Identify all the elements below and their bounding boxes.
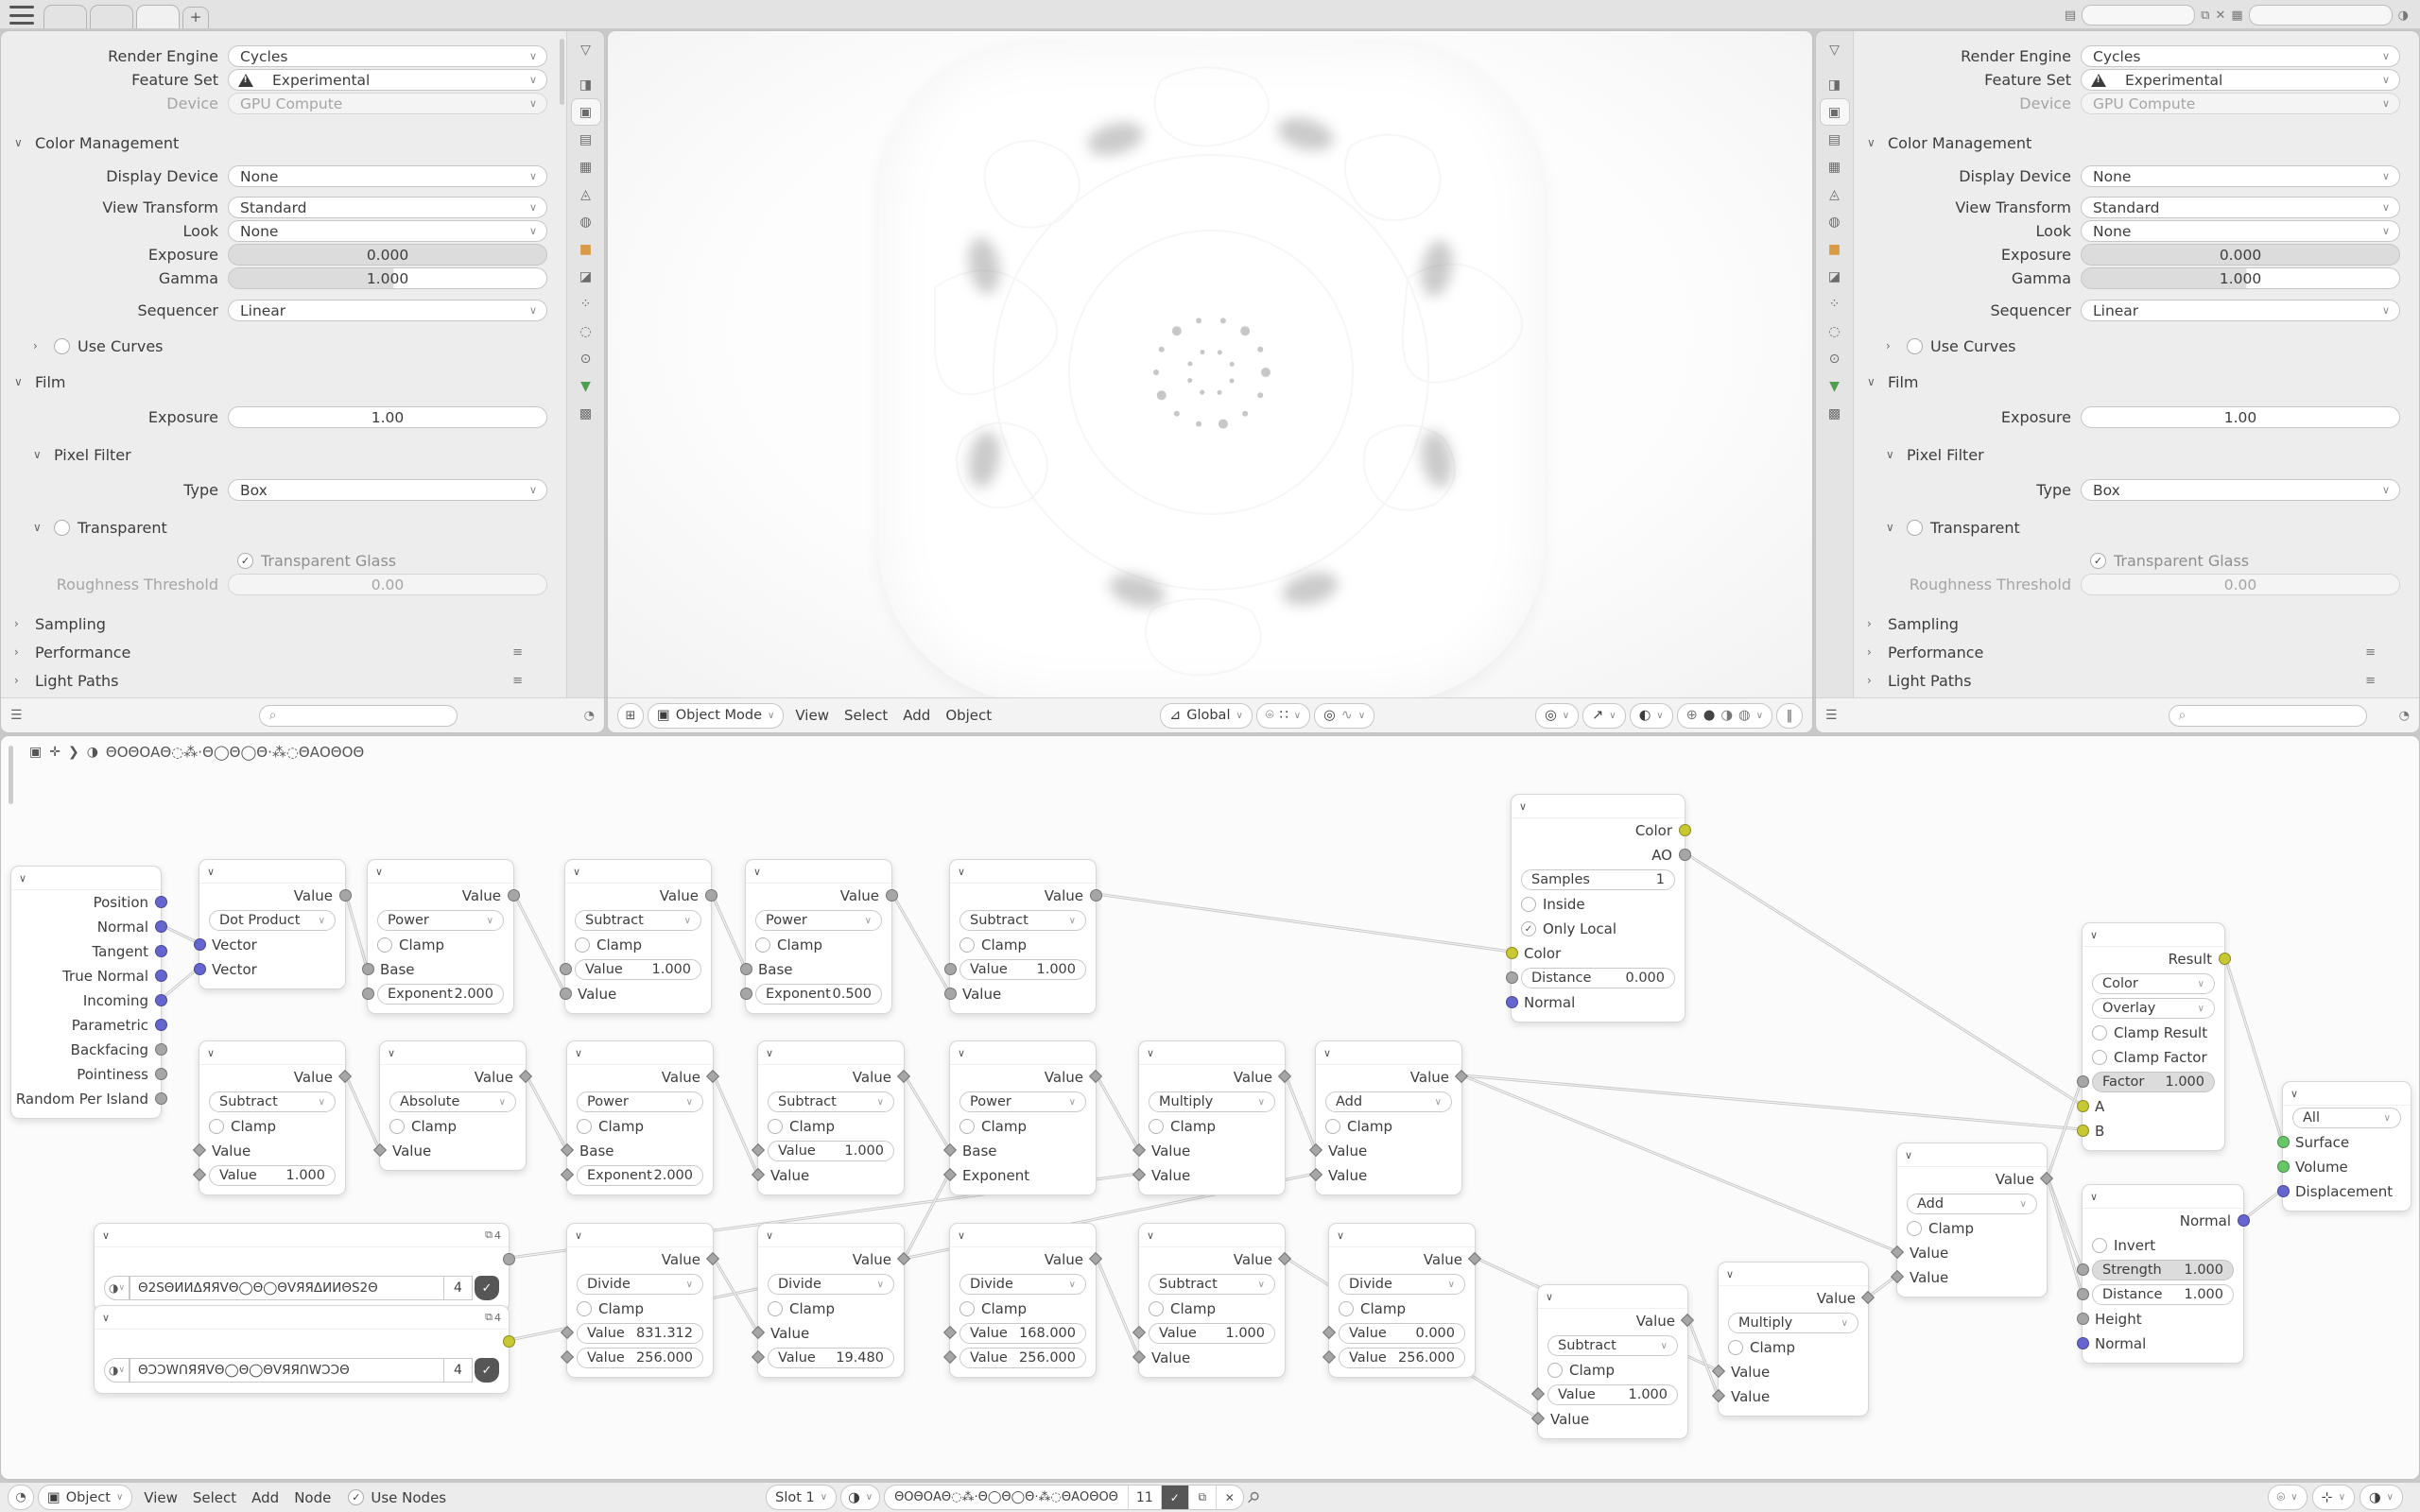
material-name-field[interactable]: ΘΟΘΟAΘ◌⁂·Θ◯Θ◯Θ·⁂◌ΘAΟΘΟΘ [885, 1490, 1128, 1504]
overlay-icon[interactable]: ⊹∨ [2312, 1485, 2355, 1510]
prop-dropdown[interactable]: Experimental∨ [2081, 69, 2400, 91]
show-overlays-dropdown[interactable]: ↗∨ [1582, 703, 1625, 729]
math-power-node[interactable]: ∨ValuePower∨ClampBaseExponent2.000 [367, 859, 514, 1014]
add-workspace-tab[interactable]: + [182, 7, 209, 28]
checkbox[interactable] [1325, 1119, 1340, 1134]
input-socket[interactable] [2277, 1160, 2290, 1173]
menu-add[interactable]: Add [895, 707, 938, 724]
input-socket[interactable] [2277, 1185, 2290, 1197]
prop-dropdown[interactable]: Box∨ [2081, 479, 2400, 501]
world-tab-icon[interactable]: ◍ [572, 209, 600, 234]
output-socket[interactable] [503, 1335, 515, 1348]
node-header[interactable]: ∨ [950, 1041, 1096, 1065]
modifiers-tab-icon[interactable]: ◪ [572, 264, 600, 289]
collapse-chevron-icon[interactable]: ∨ [388, 1047, 395, 1059]
math-add-node[interactable]: ∨ValueAdd∨ClampValueValue [1315, 1040, 1462, 1195]
collapse-chevron-icon[interactable]: ∨ [1323, 1047, 1331, 1059]
checkbox[interactable] [389, 1119, 405, 1134]
math-divide-node[interactable]: ∨ValueDivide∨ClampValue168.000Value256.0… [949, 1223, 1097, 1378]
prop-dropdown[interactable]: Cycles∨ [228, 45, 547, 67]
node-header[interactable]: ∨ [2283, 1082, 2411, 1106]
checkbox[interactable]: ✓ [2090, 553, 2106, 569]
operation-dropdown[interactable]: Add∨ [1907, 1194, 2037, 1214]
math-subtract-node[interactable]: ∨ValueSubtract∨ClampValue1.000Value [564, 859, 712, 1014]
image-users-count[interactable]: 4 [444, 1358, 473, 1383]
constraints-tab-icon[interactable]: ⊙ [572, 346, 600, 371]
input-socket[interactable] [2277, 1136, 2290, 1148]
math-divide-node[interactable]: ∨ValueDivide∨ClampValueValue19.480 [757, 1223, 905, 1378]
value-field[interactable]: Exponent2.000 [577, 1165, 703, 1186]
node-header[interactable]: ∨ [199, 1041, 345, 1065]
copy-material-icon[interactable]: ⧉ [1188, 1486, 1216, 1509]
output-socket[interactable] [1679, 849, 1691, 861]
node-header[interactable]: ∨ [2083, 923, 2224, 947]
particles-tab-icon[interactable]: ⁘ [572, 291, 600, 317]
collapse-chevron-icon[interactable]: ∨ [575, 1047, 582, 1059]
material-tab-icon[interactable]: ▩ [572, 401, 600, 426]
output-socket[interactable] [155, 896, 167, 908]
collapse-chevron-icon[interactable]: ∨ [375, 866, 383, 878]
math-power-node[interactable]: ∨ValuePower∨ClampBaseExponent0.500 [745, 859, 892, 1014]
image-browse-dropdown[interactable]: ◑∨ [104, 1358, 130, 1383]
math-power-node[interactable]: ∨ValuePower∨ClampBaseExponent [949, 1040, 1097, 1195]
output-socket[interactable] [339, 889, 352, 902]
input-socket[interactable] [560, 988, 572, 1000]
input-socket[interactable] [2077, 1125, 2089, 1137]
viewport-canvas[interactable] [608, 31, 1812, 698]
menu-select[interactable]: Select [185, 1489, 244, 1506]
value-field[interactable]: Value19.480 [768, 1348, 894, 1368]
prop-dropdown[interactable]: None∨ [2081, 165, 2400, 187]
checkbox[interactable] [575, 937, 590, 953]
prop-dropdown[interactable]: GPU Compute∨ [2081, 93, 2400, 114]
editor-type-icon[interactable]: ☰ [1825, 708, 1838, 723]
value-field[interactable]: Exponent2.000 [377, 984, 504, 1005]
checkbox[interactable] [1149, 1301, 1164, 1316]
shading-mode-icon[interactable]: ⊕ [1686, 708, 1698, 723]
prop-dropdown[interactable]: Standard∨ [228, 197, 547, 218]
view-layer-tab-icon[interactable]: ▦ [1821, 154, 1849, 180]
use-nodes-checkbox[interactable]: ✓ [348, 1489, 364, 1505]
particles-tab-icon[interactable]: ⁘ [1821, 291, 1849, 317]
operation-dropdown[interactable]: Divide∨ [959, 1274, 1086, 1295]
prop-field[interactable]: 1.00 [2081, 406, 2400, 428]
output-socket[interactable] [705, 889, 717, 902]
image-name-field[interactable]: Θ2ЅΘͶИΔЯЯVΘ◯Θ◯ΘVЯЯΔИͶΘЅ2Θ [130, 1276, 444, 1300]
close-icon[interactable]: ✕ [2215, 9, 2225, 23]
xray-toggle[interactable]: ◐∨ [1630, 703, 1673, 729]
node-header[interactable]: ∨ [950, 1224, 1096, 1247]
math-dot-product-node[interactable]: ∨ValueDot Product∨VectorVector [199, 859, 346, 989]
collapse-chevron-icon[interactable]: ∨ [2090, 929, 2098, 941]
value-field[interactable]: Value1.000 [575, 959, 701, 980]
search-input[interactable]: ⌕ [259, 705, 458, 727]
collapse-chevron-icon[interactable]: ∨ [2090, 1191, 2098, 1203]
collapse-chevron-icon[interactable]: ∨ [1546, 1291, 1553, 1303]
presets-menu-icon[interactable]: ≡ [2365, 674, 2377, 688]
world-tab-icon[interactable]: ◍ [1821, 209, 1849, 234]
input-socket[interactable] [740, 963, 752, 975]
input-socket[interactable] [2077, 1075, 2089, 1088]
math-subtract-node[interactable]: ∨ValueSubtract∨ClampValue1.000Value [757, 1040, 905, 1195]
operation-dropdown[interactable]: All∨ [2292, 1108, 2401, 1128]
checkbox[interactable] [2092, 1050, 2107, 1065]
fake-user-shield-icon[interactable]: ✓ [1161, 1486, 1188, 1509]
node-header[interactable]: ∨ [199, 860, 345, 884]
value-field[interactable]: Value1.000 [1149, 1323, 1275, 1344]
toggle-checkbox[interactable] [54, 520, 70, 536]
pause-render-button[interactable]: ‖ [1776, 703, 1803, 729]
math-multiply-node[interactable]: ∨ValueMultiply∨ClampValueValue [1138, 1040, 1286, 1195]
collapse-chevron-icon[interactable]: ∨ [1147, 1229, 1154, 1242]
image-texture-node[interactable]: ∨⧉4◑∨ΘƆϽWՈЯЯVΘ◯Θ◯ΘVЯЯՈWϽƆΘ4✓ [94, 1305, 510, 1394]
node-header[interactable]: ∨ [758, 1224, 904, 1247]
checkbox[interactable] [1339, 1301, 1354, 1316]
node-header[interactable]: ∨ [565, 860, 711, 884]
prop-slider[interactable]: 1.000 [2081, 267, 2400, 289]
section-light-paths[interactable]: ›Light Paths≡ [1854, 668, 2420, 693]
checkbox[interactable] [209, 1119, 224, 1134]
operation-dropdown[interactable]: Subtract∨ [959, 910, 1086, 931]
menu-add[interactable]: Add [244, 1489, 286, 1506]
section-color-management[interactable]: ∨Color Management [1, 130, 568, 155]
presets-menu-icon[interactable]: ≡ [512, 645, 525, 660]
node-header[interactable]: ∨⧉4 [95, 1306, 509, 1330]
unlink-material-icon[interactable]: ✕ [1216, 1486, 1243, 1509]
view-layer-field[interactable] [2249, 5, 2393, 26]
shading-mode-icon[interactable]: ● [1703, 708, 1716, 723]
physics-tab-icon[interactable]: ◌ [572, 318, 600, 344]
section-pixel-filter[interactable]: ∨Pixel Filter [1, 442, 568, 467]
output-socket[interactable] [155, 945, 167, 957]
sphere-icon[interactable]: ◑ [2398, 9, 2409, 23]
collapse-chevron-icon[interactable]: ∨ [766, 1047, 773, 1059]
math-add-node[interactable]: ∨ValueAdd∨ClampValueValue [1896, 1143, 2048, 1297]
editor-type-icon[interactable]: ⊞ [617, 703, 644, 729]
copy-icon[interactable]: ⧉ [2201, 9, 2209, 23]
value-field[interactable]: Value168.000 [959, 1323, 1086, 1344]
value-field[interactable]: Value256.000 [577, 1348, 703, 1368]
material-preview-icon[interactable]: ◑ [87, 745, 98, 760]
checkbox[interactable] [768, 1119, 783, 1134]
section-pixel-filter[interactable]: ∨Pixel Filter [1854, 442, 2420, 467]
math-multiply-node[interactable]: ∨ValueMultiply∨ClampValueValue [1718, 1262, 1869, 1417]
node-header[interactable]: ∨ [1316, 1041, 1461, 1065]
object-data-tab-icon[interactable]: ▼ [572, 373, 600, 399]
input-socket[interactable] [1506, 947, 1518, 959]
object-data-tab-icon[interactable]: ▼ [1821, 373, 1849, 399]
checkbox[interactable] [2092, 1025, 2107, 1040]
pin-icon[interactable]: ⚲ [1243, 1487, 1264, 1508]
math-subtract-node[interactable]: ∨ValueSubtract∨ClampValueValue1.000 [199, 1040, 346, 1195]
modifiers-tab-icon[interactable]: ◪ [1821, 264, 1849, 289]
value-field[interactable]: Exponent0.500 [755, 984, 882, 1005]
operation-dropdown[interactable]: Subtract∨ [1149, 1274, 1275, 1295]
output-socket[interactable] [155, 920, 167, 933]
toggle-checkbox[interactable] [1907, 520, 1923, 536]
tool-tab-icon[interactable]: ◨ [1821, 72, 1849, 97]
value-field[interactable]: Factor1.000 [2092, 1072, 2215, 1092]
section-film[interactable]: ∨Film [1854, 369, 2420, 394]
image-users-count[interactable]: 4 [444, 1276, 473, 1300]
input-socket[interactable] [2077, 1313, 2089, 1325]
menu-node[interactable]: Node [286, 1489, 338, 1506]
mode-dropdown[interactable]: ▣ Object Mode ∨ [648, 703, 784, 729]
value-field[interactable]: Value0.000 [1339, 1323, 1465, 1344]
operation-dropdown[interactable]: Divide∨ [768, 1274, 894, 1295]
snap-icon[interactable]: ⌾∨ [2268, 1485, 2308, 1510]
operation-dropdown[interactable]: Divide∨ [577, 1274, 703, 1295]
collapse-chevron-icon[interactable]: ∨ [1337, 1229, 1344, 1242]
math-subtract-node[interactable]: ∨ValueSubtract∨ClampValue1.000Value [949, 859, 1097, 1014]
object-tab-icon[interactable]: ■ [572, 236, 600, 262]
shading-mode-icon[interactable]: ◑ [1720, 708, 1733, 723]
node-header[interactable]: ∨ [567, 1041, 713, 1065]
presets-menu-icon[interactable]: ≡ [2365, 645, 2377, 660]
input-socket[interactable] [740, 988, 752, 1000]
filter-icon[interactable]: ◔ [2399, 709, 2410, 723]
users-count-badge[interactable]: 11 [1128, 1486, 1161, 1509]
prop-field[interactable]: 0.00 [228, 574, 547, 595]
input-socket[interactable] [362, 988, 374, 1000]
input-socket[interactable] [2077, 1263, 2089, 1276]
collapse-chevron-icon[interactable]: ∨ [766, 1229, 773, 1242]
workspace-tab[interactable] [90, 5, 133, 28]
node-header[interactable]: ∨ [1139, 1041, 1285, 1065]
collapse-chevron-icon[interactable]: ∨ [958, 866, 965, 878]
editor-type-icon[interactable]: ☰ [10, 708, 23, 723]
output-socket[interactable] [503, 1253, 515, 1265]
checkbox[interactable] [577, 1119, 592, 1134]
node-header[interactable]: ∨ [11, 867, 161, 890]
node-graph[interactable]: ∨PositionNormalTangentTrue NormalIncomin… [1, 736, 2419, 1479]
checkbox[interactable] [959, 1301, 975, 1316]
output-socket[interactable] [508, 889, 520, 902]
prop-field[interactable]: 1.00 [228, 406, 547, 428]
prop-dropdown[interactable]: GPU Compute∨ [228, 93, 547, 114]
section-performance[interactable]: ›Performance≡ [1854, 640, 2420, 664]
collapse-chevron-icon[interactable]: ∨ [102, 1312, 110, 1324]
node-header[interactable]: ∨ [758, 1041, 904, 1065]
scene-tab-icon[interactable]: ◬ [1821, 181, 1849, 207]
material-slot-dropdown[interactable]: Slot 1 ∨ [766, 1485, 837, 1510]
collapse-chevron-icon[interactable]: ∨ [573, 866, 580, 878]
operation-dropdown[interactable]: Power∨ [755, 910, 882, 931]
checkbox[interactable] [768, 1301, 783, 1316]
image-name-field[interactable]: ΘƆϽWՈЯЯVΘ◯Θ◯ΘVЯЯՈWϽƆΘ [130, 1358, 444, 1383]
math-divide-node[interactable]: ∨ValueDivide∨ClampValue831.312Value256.0… [566, 1223, 714, 1378]
operation-dropdown[interactable]: Power∨ [377, 910, 504, 931]
object-tab-icon[interactable]: ■ [1821, 236, 1849, 262]
value-field[interactable]: Samples1 [1521, 869, 1675, 890]
proportional-editing-toggle[interactable]: ◎∿∨ [1314, 703, 1374, 729]
output-tab-icon[interactable]: ▤ [572, 127, 600, 152]
checkbox[interactable] [959, 937, 975, 953]
operation-dropdown[interactable]: Subtract∨ [1547, 1335, 1678, 1356]
output-socket[interactable] [155, 1019, 167, 1031]
input-socket[interactable] [2077, 1337, 2089, 1349]
math-subtract-node[interactable]: ∨ValueSubtract∨ClampValue1.000Value [1138, 1223, 1286, 1378]
value-field[interactable]: Strength1.000 [2092, 1260, 2234, 1280]
mix-color-node[interactable]: ∨ResultColor∨Overlay∨Clamp ResultClamp F… [2082, 922, 2225, 1151]
section-performance[interactable]: ›Performance≡ [1, 640, 568, 664]
material-preview-icon[interactable]: ◑∨ [2359, 1485, 2403, 1510]
node-header[interactable]: ∨ [2083, 1185, 2243, 1209]
output-socket[interactable] [155, 970, 167, 982]
operation-dropdown[interactable]: Power∨ [959, 1091, 1086, 1112]
node-header[interactable]: ∨⧉4 [95, 1224, 509, 1247]
snapping-toggle[interactable]: ⌾∷∨ [1256, 703, 1310, 729]
scrollbar[interactable] [560, 39, 564, 105]
output-socket[interactable] [155, 994, 167, 1006]
filter-icon[interactable]: ◔ [584, 709, 595, 723]
collapse-chevron-icon[interactable]: ∨ [958, 1047, 965, 1059]
search-input[interactable]: ⌕ [2169, 705, 2367, 727]
node-header[interactable]: ∨ [746, 860, 891, 884]
node-header[interactable]: ∨ [1139, 1224, 1285, 1247]
output-socket[interactable] [2238, 1214, 2250, 1227]
prop-slider[interactable]: 0.000 [2081, 244, 2400, 266]
section-transparent[interactable]: ∨Transparent [1854, 515, 2420, 540]
input-socket[interactable] [194, 938, 206, 951]
viewport-object[interactable] [878, 42, 1545, 703]
toggle-checkbox[interactable] [54, 338, 70, 354]
menu-view[interactable]: View [136, 1489, 185, 1506]
checkbox[interactable] [1728, 1340, 1743, 1355]
value-field[interactable]: Value1.000 [209, 1165, 336, 1186]
math-subtract-node[interactable]: ∨ValueSubtract∨ClampValue1.000Value [1537, 1284, 1688, 1439]
material-output-node[interactable]: ∨All∨SurfaceVolumeDisplacement [2282, 1081, 2411, 1211]
output-socket[interactable] [1679, 824, 1691, 836]
checkbox[interactable] [1521, 897, 1536, 912]
input-socket[interactable] [560, 963, 572, 975]
plus-icon[interactable]: ✛ [49, 745, 60, 760]
input-socket[interactable] [194, 963, 206, 975]
collapse-chevron-icon[interactable]: ∨ [102, 1229, 110, 1242]
output-socket[interactable] [155, 1092, 167, 1105]
collapse-chevron-icon[interactable]: ∨ [575, 1229, 582, 1242]
output-socket[interactable] [2219, 953, 2231, 965]
node-header[interactable]: ∨ [950, 860, 1096, 884]
toggle-use-curves[interactable]: ›Use Curves [1854, 334, 2420, 358]
checkbox[interactable]: ✓ [1521, 921, 1536, 936]
output-tab-icon[interactable]: ▤ [1821, 127, 1849, 152]
ambient-occlusion-node[interactable]: ∨ColorAOSamples1Inside✓Only LocalColorDi… [1511, 794, 1685, 1022]
checkbox[interactable] [1547, 1363, 1563, 1378]
node-header[interactable]: ∨ [1719, 1263, 1868, 1286]
collapse-chevron-icon[interactable]: ∨ [1905, 1149, 1912, 1161]
scrollbar[interactable] [9, 746, 13, 804]
prop-dropdown[interactable]: None∨ [228, 165, 547, 187]
checkbox[interactable] [577, 1301, 592, 1316]
input-socket[interactable] [944, 988, 957, 1000]
checkbox[interactable] [755, 937, 770, 953]
toggle-checkbox[interactable] [1907, 338, 1923, 354]
bump-node[interactable]: ∨NormalInvertStrength1.000Distance1.000H… [2082, 1184, 2244, 1364]
section-sampling[interactable]: ›Sampling [1854, 611, 2420, 636]
tool-tab-icon[interactable]: ◨ [572, 72, 600, 97]
geometry-node[interactable]: ∨PositionNormalTangentTrue NormalIncomin… [10, 866, 162, 1119]
object-icon[interactable]: ▣ [29, 745, 42, 760]
prop-dropdown[interactable]: Experimental∨ [228, 69, 547, 91]
scene-name-field[interactable] [2082, 5, 2195, 26]
node-header[interactable]: ∨ [1538, 1285, 1687, 1309]
view-layer-tab-icon[interactable]: ▦ [572, 154, 600, 180]
menu-select[interactable]: Select [837, 707, 895, 724]
transform-orientation-dropdown[interactable]: ⊿ Global ∨ [1160, 703, 1253, 729]
collapse-chevron-icon[interactable]: ∨ [958, 1229, 965, 1242]
scene-tab-icon[interactable]: ◬ [572, 181, 600, 207]
value-field[interactable]: Distance1.000 [2092, 1284, 2234, 1305]
menu-view[interactable]: View [787, 707, 837, 724]
collapse-chevron-icon[interactable]: ∨ [207, 866, 215, 878]
node-header[interactable]: ∨ [368, 860, 513, 884]
value-field[interactable]: Value1.000 [959, 959, 1086, 980]
value-field[interactable]: Value256.000 [1339, 1348, 1465, 1368]
collapse-chevron-icon[interactable]: ∨ [753, 866, 761, 878]
constraints-tab-icon[interactable]: ⊙ [1821, 346, 1849, 371]
prop-dropdown[interactable]: Linear∨ [228, 300, 547, 321]
operation-dropdown[interactable]: Add∨ [1325, 1091, 1452, 1112]
section-transparent[interactable]: ∨Transparent [1, 515, 568, 540]
prop-slider[interactable]: 1.000 [228, 267, 547, 289]
math-absolute-node[interactable]: ∨ValueAbsolute∨ClampValue [379, 1040, 527, 1171]
material-browse-dropdown[interactable]: ◑ ∨ [840, 1485, 880, 1510]
operation-dropdown[interactable]: Multiply∨ [1149, 1091, 1275, 1112]
image-browse-dropdown[interactable]: ◑∨ [104, 1276, 130, 1300]
collapse-chevron-icon[interactable]: ∨ [19, 872, 26, 885]
image-texture-node[interactable]: ∨⧉4◑∨Θ2ЅΘͶИΔЯЯVΘ◯Θ◯ΘVЯЯΔИͶΘЅ2Θ4✓ [94, 1223, 510, 1312]
shader-type-dropdown[interactable]: ▣ Object ∨ [38, 1485, 132, 1510]
node-header[interactable]: ∨ [380, 1041, 526, 1065]
input-socket[interactable] [362, 963, 374, 975]
input-socket[interactable] [2077, 1288, 2089, 1300]
collapse-chevron-icon[interactable]: ∨ [207, 1047, 215, 1059]
output-socket[interactable] [886, 889, 898, 902]
editor-type-icon[interactable]: ◔ [8, 1485, 34, 1510]
prop-field[interactable]: 0.00 [2081, 574, 2400, 595]
shading-mode-group[interactable]: ⊕●◑◍∨ [1677, 703, 1772, 729]
node-header[interactable]: ∨ [1329, 1224, 1475, 1247]
math-divide-node[interactable]: ∨ValueDivide∨ClampValue0.000Value256.000 [1328, 1223, 1476, 1378]
collapse-chevron-icon[interactable]: ∨ [1519, 800, 1527, 813]
output-socket[interactable] [155, 1043, 167, 1056]
check-transparent-glass[interactable]: ✓Transparent Glass [1854, 549, 2420, 573]
checkbox[interactable] [959, 1119, 975, 1134]
math-power-node[interactable]: ∨ValuePower∨ClampBaseExponent2.000 [566, 1040, 714, 1195]
checkbox[interactable]: ✓ [237, 553, 253, 569]
fake-user-shield-icon[interactable]: ✓ [475, 1276, 499, 1300]
prop-dropdown[interactable]: None∨ [228, 220, 547, 242]
menu-object[interactable]: Object [938, 707, 999, 724]
value-field[interactable]: Value831.312 [577, 1323, 703, 1344]
physics-tab-icon[interactable]: ◌ [1821, 318, 1849, 344]
checkbox[interactable] [2092, 1238, 2107, 1253]
render-tab-icon[interactable]: ▣ [1821, 99, 1849, 125]
value-field[interactable]: Distance0.000 [1521, 968, 1675, 988]
fake-user-shield-icon[interactable]: ✓ [475, 1358, 499, 1383]
input-socket[interactable] [1506, 971, 1518, 984]
render-tab-icon[interactable]: ▣ [572, 99, 600, 125]
prop-dropdown[interactable]: Cycles∨ [2081, 45, 2400, 67]
presets-menu-icon[interactable]: ≡ [512, 674, 525, 688]
checkbox[interactable] [1907, 1221, 1922, 1236]
operation-dropdown[interactable]: Subtract∨ [209, 1091, 336, 1112]
operation-dropdown[interactable]: Subtract∨ [575, 910, 701, 931]
operation-dropdown[interactable]: Subtract∨ [768, 1091, 894, 1112]
value-field[interactable]: Value256.000 [959, 1348, 1086, 1368]
checkbox[interactable] [377, 937, 392, 953]
